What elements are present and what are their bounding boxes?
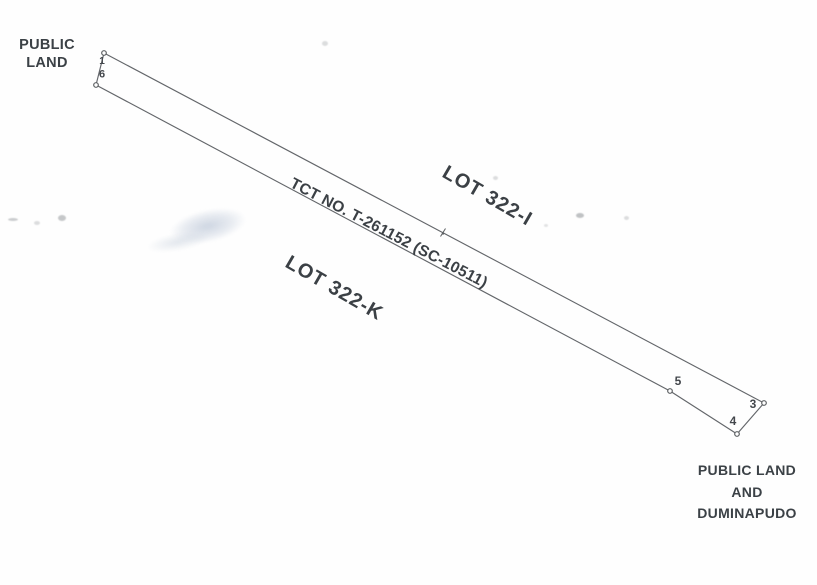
corner-point-4-marker xyxy=(735,432,740,437)
boundary-edge-1-3 xyxy=(104,53,764,403)
label-public-land-duminapudo-line1: PUBLIC LAND xyxy=(676,460,817,482)
corner-point-6-marker xyxy=(94,83,99,88)
point-number-label-4: 4 xyxy=(730,415,737,427)
label-public-land-line1: PUBLIC xyxy=(9,36,85,54)
corner-point-1-marker xyxy=(102,51,107,56)
scan-speck xyxy=(624,216,629,220)
label-public-land-duminapudo: PUBLIC LAND AND DUMINAPUDO xyxy=(676,460,817,525)
point-number-label-5: 5 xyxy=(675,375,682,387)
scan-speck xyxy=(493,176,498,180)
corner-point-5-marker xyxy=(668,389,673,394)
scan-speck xyxy=(576,213,584,218)
survey-plan: PUBLIC LAND LOT 322-I TCT NO. T-261152 (… xyxy=(0,0,817,585)
mid-line-dot-marker xyxy=(442,232,444,234)
point-number-label-6: 6 xyxy=(99,70,105,81)
scan-speck xyxy=(58,215,66,221)
scan-speck xyxy=(544,224,548,227)
point-number-label-1: 1 xyxy=(99,57,105,67)
boundary-edge-4-5 xyxy=(670,391,737,434)
label-public-land-duminapudo-line2: AND xyxy=(676,482,817,504)
scan-speck xyxy=(8,218,18,221)
point-number-label-3: 3 xyxy=(750,398,757,410)
scan-speck xyxy=(34,221,40,225)
label-public-land-line2: LAND xyxy=(9,54,85,72)
scan-speck xyxy=(322,41,328,46)
corner-point-3-marker xyxy=(762,401,767,406)
label-public-land: PUBLIC LAND xyxy=(9,36,85,72)
label-public-land-duminapudo-line3: DUMINAPUDO xyxy=(676,503,817,525)
